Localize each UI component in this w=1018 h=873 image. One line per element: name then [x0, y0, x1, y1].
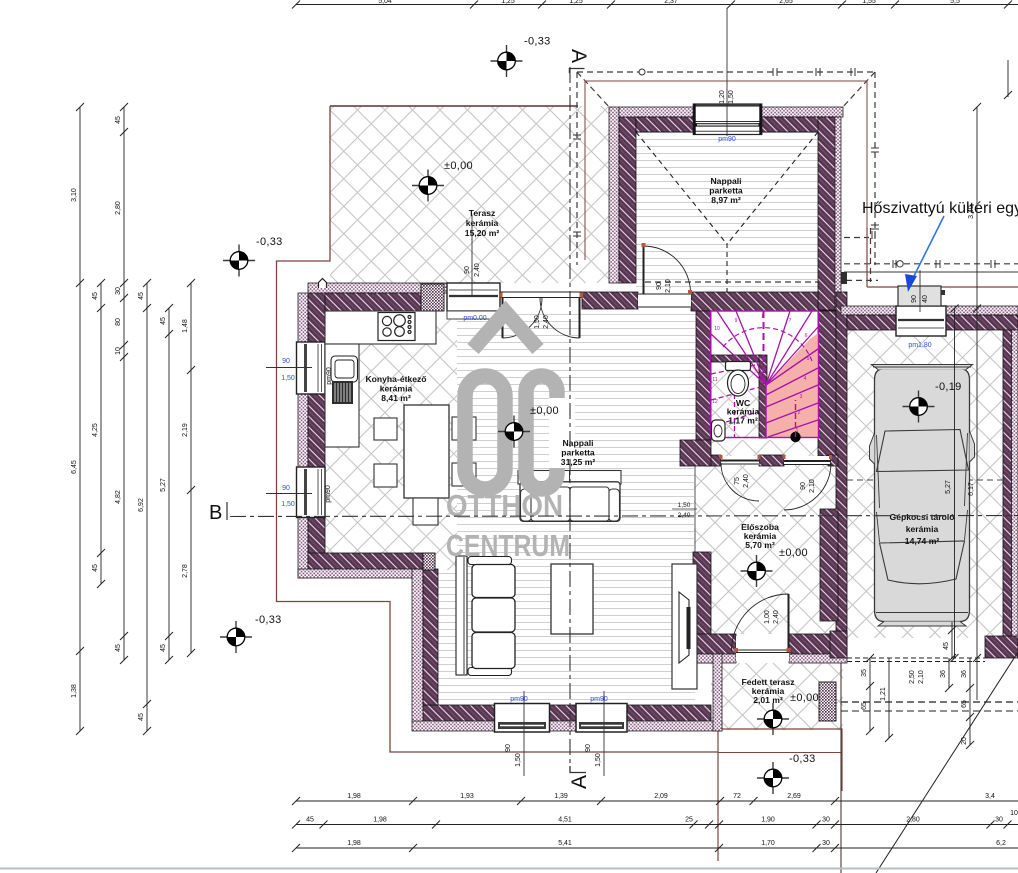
- svg-text:6,17: 6,17: [968, 482, 975, 496]
- svg-text:1,00: 1,00: [764, 610, 771, 624]
- svg-text:1,25: 1,25: [569, 0, 583, 5]
- svg-text:5,27: 5,27: [945, 480, 952, 494]
- svg-text:2,80: 2,80: [115, 201, 122, 215]
- svg-text:Hőszivattyú kültéri egys: Hőszivattyú kültéri egys: [862, 200, 1018, 217]
- svg-text:4,82: 4,82: [115, 490, 122, 504]
- svg-text:1,50: 1,50: [281, 375, 295, 382]
- svg-text:36: 36: [961, 670, 968, 678]
- svg-text:5: 5: [807, 356, 810, 362]
- svg-text:3,4: 3,4: [985, 793, 995, 800]
- svg-text:6,45: 6,45: [71, 460, 78, 474]
- svg-text:1,21: 1,21: [880, 687, 887, 701]
- svg-text:±0,00: ±0,00: [790, 692, 819, 704]
- svg-text:5,27: 5,27: [160, 478, 167, 492]
- svg-text:1: 1: [796, 428, 799, 434]
- svg-text:90: 90: [505, 744, 512, 752]
- svg-text:2,10: 2,10: [665, 279, 672, 293]
- svg-text:1,17 m²: 1,17 m²: [728, 416, 758, 426]
- svg-text:65: 65: [861, 702, 868, 710]
- svg-text:pm0.00: pm0.00: [463, 315, 486, 322]
- svg-text:A: A: [567, 49, 590, 63]
- svg-text:30: 30: [822, 817, 830, 824]
- svg-text:parketta: parketta: [709, 186, 743, 196]
- svg-text:pm90: pm90: [325, 485, 332, 503]
- svg-text:4,51: 4,51: [558, 817, 572, 824]
- svg-text:2,69: 2,69: [787, 793, 801, 800]
- svg-text:parketta: parketta: [561, 448, 595, 458]
- svg-text:90: 90: [800, 482, 807, 490]
- svg-text:45: 45: [115, 116, 122, 124]
- svg-text:45: 45: [138, 713, 145, 721]
- svg-text:9: 9: [735, 318, 738, 324]
- svg-text:8,41 m²: 8,41 m²: [381, 393, 411, 403]
- svg-text:1,90: 1,90: [761, 817, 775, 824]
- svg-text:2,50: 2,50: [909, 670, 916, 684]
- svg-text:10: 10: [115, 347, 122, 355]
- svg-text:1,98: 1,98: [373, 817, 387, 824]
- svg-text:CENTRUM: CENTRUM: [446, 528, 570, 563]
- svg-text:2,01 m²: 2,01 m²: [753, 695, 783, 705]
- svg-text:pm90: pm90: [326, 367, 333, 385]
- svg-text:2,80: 2,80: [906, 817, 920, 824]
- svg-text:5,70 m²: 5,70 m²: [745, 540, 775, 550]
- svg-text:Konyha-étkező: Konyha-étkező: [365, 374, 426, 384]
- svg-text:4,25: 4,25: [92, 423, 99, 437]
- svg-text:1,98: 1,98: [347, 793, 361, 800]
- svg-text:90: 90: [656, 282, 663, 290]
- svg-text:-0,33: -0,33: [256, 236, 283, 248]
- svg-text:1,50: 1,50: [534, 315, 541, 329]
- svg-text:1,50: 1,50: [678, 502, 691, 509]
- svg-text:2,40: 2,40: [773, 610, 780, 624]
- svg-text:7: 7: [789, 318, 792, 324]
- svg-text:90: 90: [585, 744, 592, 752]
- svg-text:31,25 m²: 31,25 m²: [561, 457, 596, 467]
- svg-text:±0,00: ±0,00: [779, 547, 808, 559]
- svg-text:5,5: 5,5: [950, 0, 960, 5]
- svg-text:2: 2: [798, 410, 801, 416]
- svg-text:40: 40: [922, 295, 929, 303]
- svg-text:2,09: 2,09: [654, 793, 668, 800]
- svg-text:kerámia: kerámia: [380, 384, 413, 394]
- svg-text:80: 80: [115, 318, 122, 326]
- svg-text:72: 72: [733, 793, 741, 800]
- svg-text:2,10: 2,10: [918, 670, 925, 684]
- svg-text:6,92: 6,92: [138, 498, 145, 512]
- svg-text:-0,19: -0,19: [935, 381, 962, 393]
- svg-text:45: 45: [115, 644, 122, 652]
- svg-text:2,40: 2,40: [474, 263, 481, 277]
- svg-text:45: 45: [306, 817, 314, 824]
- svg-text:90: 90: [911, 295, 918, 303]
- svg-text:12: 12: [712, 399, 718, 405]
- svg-text:A: A: [568, 775, 591, 789]
- svg-text:1,93: 1,93: [460, 793, 474, 800]
- svg-text:20: 20: [961, 737, 968, 745]
- svg-text:1,20: 1,20: [719, 90, 726, 104]
- svg-text:1,50: 1,50: [595, 753, 602, 767]
- svg-text:2,65: 2,65: [779, 0, 793, 5]
- svg-text:6: 6: [805, 333, 808, 339]
- svg-text:B: B: [209, 502, 222, 524]
- svg-text:2,40: 2,40: [743, 474, 750, 488]
- svg-text:3: 3: [800, 394, 803, 400]
- svg-text:45: 45: [92, 564, 99, 572]
- svg-text:3,10: 3,10: [71, 188, 78, 202]
- svg-text:Gépkocsi tároló: Gépkocsi tároló: [890, 512, 955, 522]
- svg-text:36: 36: [940, 670, 947, 678]
- svg-text:8,97 m²: 8,97 m²: [711, 195, 741, 205]
- svg-text:1,70: 1,70: [761, 840, 775, 847]
- svg-text:90: 90: [464, 266, 471, 274]
- svg-text:45: 45: [138, 292, 145, 300]
- svg-text:35: 35: [861, 669, 868, 677]
- svg-text:pm90: pm90: [590, 696, 608, 703]
- svg-text:30: 30: [995, 817, 1003, 824]
- svg-text:1,50: 1,50: [515, 753, 522, 767]
- svg-text:5,04: 5,04: [378, 0, 392, 5]
- svg-text:2,19: 2,19: [182, 423, 189, 437]
- svg-text:OTTHON: OTTHON: [446, 488, 563, 523]
- svg-text:25: 25: [685, 817, 693, 824]
- svg-text:3,40: 3,40: [968, 205, 975, 219]
- svg-text:45: 45: [943, 642, 950, 650]
- svg-text:-0,33: -0,33: [524, 36, 551, 48]
- svg-text:45: 45: [160, 644, 167, 652]
- svg-text:30: 30: [822, 840, 830, 847]
- svg-text:-0,33: -0,33: [255, 614, 282, 626]
- svg-text:kerámia: kerámia: [906, 524, 939, 534]
- svg-text:±0,00: ±0,00: [444, 160, 473, 172]
- svg-text:15,20 m²: 15,20 m²: [465, 228, 500, 238]
- svg-text:kerámia: kerámia: [466, 218, 499, 228]
- svg-text:±0,00: ±0,00: [530, 405, 559, 417]
- svg-text:14,74 m²: 14,74 m²: [905, 536, 940, 546]
- svg-text:11: 11: [712, 377, 717, 383]
- svg-text:1,39: 1,39: [554, 793, 568, 800]
- svg-text:1,38: 1,38: [71, 684, 78, 698]
- svg-text:Nappali: Nappali: [562, 438, 593, 448]
- svg-text:4: 4: [804, 376, 807, 382]
- svg-text:Nappali: Nappali: [710, 176, 741, 186]
- svg-text:2,78: 2,78: [182, 564, 189, 578]
- svg-text:1,55: 1,55: [862, 0, 876, 5]
- svg-text:pm1,80: pm1,80: [908, 342, 931, 349]
- svg-text:Terasz: Terasz: [469, 208, 496, 218]
- svg-text:-0,33: -0,33: [789, 753, 816, 765]
- svg-text:90: 90: [282, 485, 290, 492]
- svg-text:pm90: pm90: [718, 136, 736, 143]
- svg-text:75: 75: [734, 477, 741, 485]
- svg-text:45: 45: [92, 292, 99, 300]
- svg-text:65: 65: [961, 700, 968, 708]
- svg-text:1,98: 1,98: [347, 840, 361, 847]
- svg-text:1,25: 1,25: [501, 0, 515, 5]
- svg-text:10: 10: [1010, 810, 1018, 817]
- svg-text:1,50: 1,50: [728, 90, 735, 104]
- svg-text:2,40: 2,40: [543, 315, 550, 329]
- svg-text:2,10: 2,10: [809, 479, 816, 493]
- svg-text:6,2: 6,2: [996, 840, 1006, 847]
- svg-text:1,50: 1,50: [281, 501, 295, 508]
- svg-text:5,41: 5,41: [558, 840, 572, 847]
- svg-text:2,37: 2,37: [664, 0, 678, 5]
- svg-text:30: 30: [115, 287, 122, 295]
- svg-text:10: 10: [714, 326, 720, 332]
- svg-text:45: 45: [160, 317, 167, 325]
- svg-text:8: 8: [762, 314, 765, 320]
- svg-text:pm90: pm90: [510, 696, 528, 703]
- svg-text:1,48: 1,48: [182, 319, 189, 333]
- svg-text:90: 90: [282, 358, 290, 365]
